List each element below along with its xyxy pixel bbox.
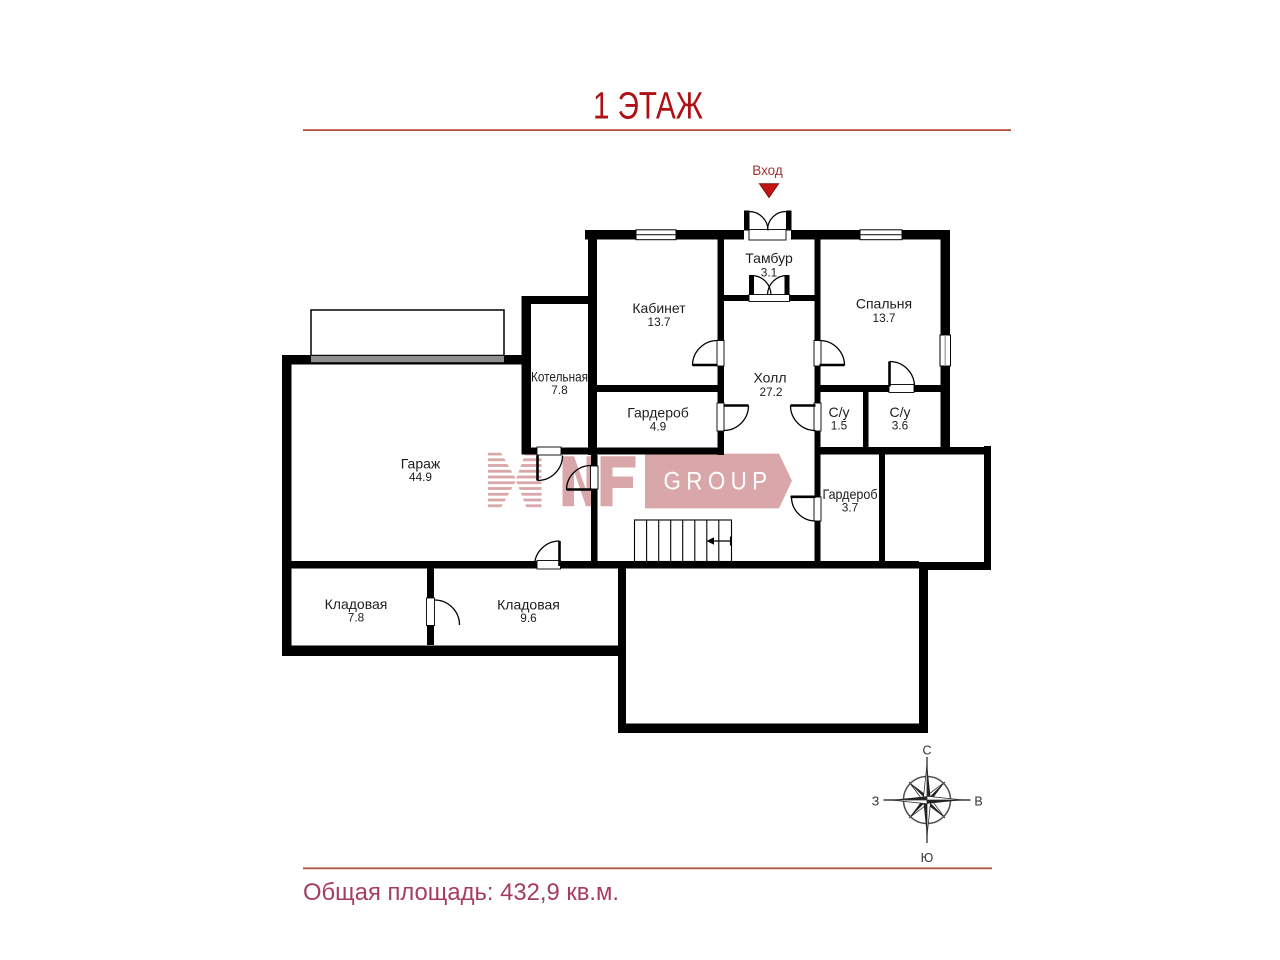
svg-text:Холл: Холл xyxy=(754,370,787,386)
svg-text:Общая площадь: 432,9 кв.м.: Общая площадь: 432,9 кв.м. xyxy=(303,879,619,906)
svg-text:Тамбур: Тамбур xyxy=(745,250,793,266)
svg-text:13.7: 13.7 xyxy=(648,315,671,329)
svg-text:Гардероб: Гардероб xyxy=(627,405,689,421)
svg-text:1.5: 1.5 xyxy=(831,419,848,433)
svg-text:GROUP: GROUP xyxy=(664,468,773,496)
svg-text:4.9: 4.9 xyxy=(650,420,666,434)
svg-text:Ю: Ю xyxy=(921,851,934,865)
svg-text:9.6: 9.6 xyxy=(520,611,537,625)
svg-text:З: З xyxy=(872,795,880,809)
svg-text:Спальня: Спальня xyxy=(856,296,912,312)
svg-text:13.7: 13.7 xyxy=(873,311,896,325)
svg-text:7.8: 7.8 xyxy=(348,611,365,625)
svg-text:В: В xyxy=(974,795,982,809)
svg-text:1 ЭТАЖ: 1 ЭТАЖ xyxy=(593,86,703,128)
svg-text:3.1: 3.1 xyxy=(761,266,777,280)
svg-text:С: С xyxy=(922,744,931,758)
svg-text:7.8: 7.8 xyxy=(551,383,568,397)
svg-text:3.7: 3.7 xyxy=(842,501,858,515)
svg-text:44.9: 44.9 xyxy=(409,470,432,484)
svg-text:Вход: Вход xyxy=(752,163,783,178)
svg-text:3.6: 3.6 xyxy=(892,419,909,433)
svg-text:Кабинет: Кабинет xyxy=(632,300,686,316)
svg-text:27.2: 27.2 xyxy=(760,385,783,399)
